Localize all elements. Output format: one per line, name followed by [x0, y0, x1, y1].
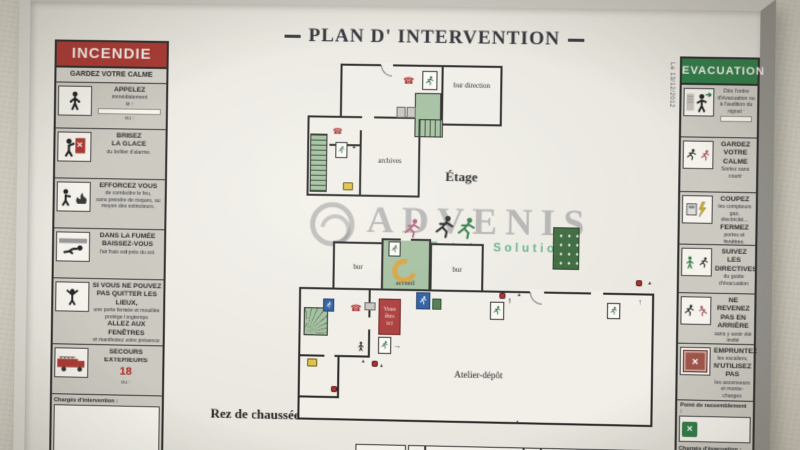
- evacuation-panel: EVACUATION Dès l'ordre d'évacuation ou à…: [674, 56, 760, 450]
- assembly-point-icon: ×: [682, 421, 698, 437]
- room-label-accueil: accueil: [387, 280, 424, 289]
- date-note: Le 13/12/2012: [668, 62, 675, 107]
- alarm-phone-icon: ☎: [333, 128, 343, 136]
- legend-cell: [355, 444, 406, 450]
- incendie-step-appelez: APPELEZ immédiatement le : ou :: [56, 82, 167, 130]
- extinguisher-icon: [343, 182, 353, 190]
- keep-calm-strip: GARDEZ VOTRE CALME: [56, 67, 166, 84]
- floor-label-rez: Rez de chaussée: [185, 405, 326, 424]
- room-label-bur-left: bur: [344, 263, 372, 272]
- incendie-panel: INCENDIE GARDEZ VOTRE CALME APPELEZ immé…: [49, 39, 169, 450]
- door-gap: [591, 290, 603, 294]
- you-are-here-line: êtes: [379, 314, 399, 320]
- alarm-callpoint-icon: [372, 361, 378, 367]
- alarm-callpoint-icon: [499, 293, 505, 299]
- signal-box-icon: [432, 299, 441, 310]
- signal-blank: [720, 116, 752, 123]
- danger-triangle-icon: ▲: [379, 364, 384, 369]
- upper-stairs-small: [418, 119, 443, 138]
- incendie-step-secours: SECOURS EXTERIEURS 18 ou :: [52, 344, 163, 396]
- step-text: SECOURS EXTERIEURS 18 ou :: [91, 348, 161, 387]
- desk-icon: [396, 107, 405, 118]
- danger-triangle-icon: ▲: [517, 293, 522, 298]
- incendie-step-fumee: DANS LA FUMÉE BAISSEZ-VOUS l'air frais e…: [54, 228, 165, 280]
- evacuation-footer: Chargés d'évacuation :: [676, 443, 752, 450]
- legend-cell-alarm: Centrale alarme incendie: [425, 445, 524, 450]
- break-glass-icon: [57, 131, 91, 162]
- step-text: COUPEZ les compteurs gaz, électricité...…: [715, 196, 754, 247]
- step-text: DANS LA FUMÉE BAISSEZ-VOUS l'air frais e…: [93, 232, 162, 257]
- danger-triangle-icon: ▲: [647, 281, 652, 286]
- step-text: NE REVENEZ PAS EN ARRIÈRE sans y avoir é…: [714, 297, 753, 345]
- evacuation-step-ordre: Dès l'ordre d'évacuation ou à l'audition…: [681, 85, 758, 139]
- fight-fire-icon: [56, 181, 90, 212]
- desk-icon: [407, 107, 416, 118]
- room-label-atelier: Atelier-dépôt: [425, 369, 532, 382]
- incendie-step-fenetres: SI VOUS NE POUVEZ PAS QUITTER LES LIEUX,…: [53, 278, 164, 346]
- exit-sign-icon: [388, 241, 400, 256]
- step-text: BRISEZ LA GLACE du boîtier d'alarme.: [94, 132, 163, 157]
- evacuation-header: EVACUATION: [682, 58, 758, 85]
- exit-sign-icon: [607, 303, 620, 319]
- direction-arrow-up-icon: ↑: [507, 297, 511, 305]
- room-label-bur-right: bur: [443, 265, 472, 274]
- phone-number-blank: [98, 109, 161, 116]
- door-gap: [362, 114, 374, 118]
- fire-truck-icon: [54, 347, 88, 378]
- sign-frame: PLAN D' INTERVENTION Le 13/12/2012 ADVEN…: [13, 0, 776, 450]
- assembly-point-label: Point de rassemblement :: [677, 400, 753, 416]
- crouch-smoke-icon: [56, 231, 90, 262]
- title-dash-left: [284, 34, 300, 37]
- floor-label-etage: Étage: [426, 169, 497, 186]
- exit-sign-blue-icon: [416, 292, 430, 309]
- walk-calm-icon: [683, 140, 714, 169]
- window-person-icon: [55, 281, 89, 312]
- upper-stairs-main: [310, 133, 328, 192]
- call-person-icon: [58, 85, 92, 116]
- door-gap: [401, 237, 411, 241]
- room-label-archives: archives: [363, 156, 416, 165]
- you-are-here-marker: Vous êtes ici: [378, 298, 401, 335]
- plan-board: PLAN D' INTERVENTION Le 13/12/2012 ADVEN…: [24, 1, 761, 450]
- door-gap: [368, 317, 370, 329]
- exit-sign-icon: [490, 302, 504, 320]
- you-are-here-line: ici: [379, 321, 399, 327]
- evacuation-step-coupez: COUPEZ les compteurs gaz, électricité...…: [679, 192, 756, 246]
- incendie-step-efforcez: EFFORCEZ VOUS de combattre le feu, sans …: [54, 178, 165, 230]
- evacuation-runner-green-icon: [453, 209, 479, 248]
- desk-icon: [364, 302, 375, 310]
- step-text: SUIVEZ LES DIRECTIVES du guide d'évacuat…: [715, 248, 753, 288]
- assembly-point-box: ×: [679, 416, 751, 444]
- evacuation-step-escaliers: × EMPRUNTEZ les escaliers, N'UTILISEZ PA…: [677, 344, 754, 402]
- alarm-callpoint-icon: [331, 386, 337, 392]
- plan-title-text: PLAN D' INTERVENTION: [308, 25, 560, 51]
- page-title: PLAN D' INTERVENTION: [282, 25, 586, 51]
- room-label-bur-direction: bur direction: [444, 81, 499, 90]
- no-return-icon: [680, 296, 711, 325]
- emergency-number: 18: [91, 365, 160, 380]
- step-text: Dès l'ordre d'évacuation ou à l'audition…: [717, 88, 755, 123]
- advenis-logo-icon: [310, 202, 355, 247]
- alarm-callpoint-icon: [636, 280, 642, 286]
- step-text: GARDEZ VOTRE CALME Sortez sans courir: [716, 141, 754, 181]
- extinguisher-icon: [307, 358, 317, 366]
- danger-triangle-icon: ▲: [361, 359, 366, 364]
- incendie-step-brisez: BRISEZ LA GLACE du boîtier d'alarme.: [55, 128, 166, 180]
- step-text: EFFORCEZ VOUS de combattre le feu, sans …: [93, 182, 162, 211]
- intervention-names-box: [53, 404, 160, 450]
- evacuation-step-arriere: NE REVENEZ PAS EN ARRIÈRE sans y avoir é…: [678, 293, 754, 345]
- exit-sign-icon: [422, 71, 437, 90]
- step-text: APPELEZ immédiatement le : ou :: [95, 86, 165, 123]
- step-text: SI VOUS NE POUVEZ PAS QUITTER LES LIEUX,…: [92, 282, 162, 345]
- you-are-here-line: Vous: [380, 307, 400, 313]
- step-text: EMPRUNTEZ les escaliers, N'UTILISEZ PAS …: [713, 347, 752, 400]
- exit-sign-blue-icon: [323, 298, 334, 311]
- evacuation-step-calme: GARDEZ VOTRE CALME Sortez sans courir: [680, 137, 757, 193]
- door-gap: [324, 355, 334, 357]
- danger-triangle-icon: ▲: [352, 145, 357, 150]
- incendie-footer: Chargés d'intervention :: [51, 394, 162, 450]
- exit-sign-icon: [335, 142, 347, 158]
- direction-arrow-icon: →: [393, 342, 401, 350]
- legend-alarm-icon: [408, 445, 425, 450]
- person-icon: [356, 338, 366, 354]
- symbols-legend-box: [553, 227, 580, 270]
- no-elevator-icon: ×: [680, 347, 711, 376]
- title-dash-right: [568, 38, 584, 41]
- direction-arrow-up-icon: ↑: [638, 298, 642, 306]
- danger-triangle-icon: ▲: [515, 420, 520, 425]
- follow-guide-icon: [681, 248, 712, 277]
- alarm-phone-icon: ☎: [350, 304, 361, 313]
- exit-sign-icon: [378, 337, 391, 354]
- incendie-header: INCENDIE: [57, 41, 167, 69]
- power-cut-icon: [682, 195, 713, 224]
- alarm-phone-icon: ☎: [403, 77, 414, 86]
- evacuation-order-icon: [683, 88, 714, 117]
- evacuation-step-directives: SUIVEZ LES DIRECTIVES du guide d'évacuat…: [679, 245, 755, 295]
